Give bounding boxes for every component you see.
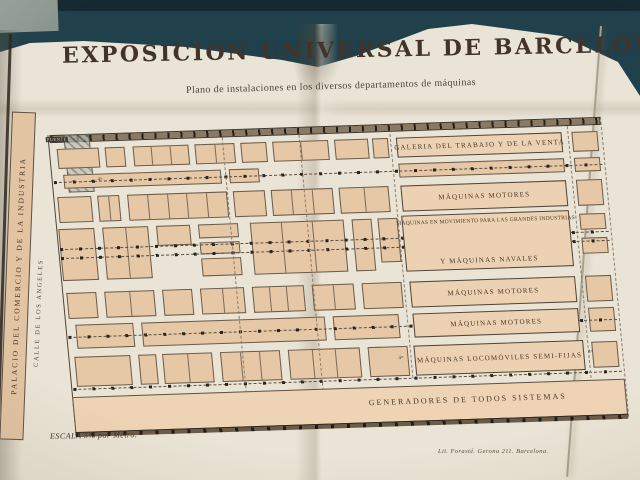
plan-block	[200, 287, 246, 314]
band-motores-2: MÁQUINAS MOTORES	[409, 276, 577, 307]
plan-block	[132, 145, 190, 167]
plan-block	[334, 139, 370, 160]
plan-block	[104, 290, 156, 318]
plan-block	[74, 355, 133, 387]
band-motores-2-label: MÁQUINAS MOTORES	[447, 286, 540, 297]
plan-block	[198, 223, 239, 238]
plan-block	[127, 191, 229, 220]
band-galeria-label: GALERIA DEL TRABAJO Y DE LA VENTA	[394, 138, 565, 152]
plan-block	[571, 131, 599, 152]
calle-label: CALLE DE LOS ANGELES	[33, 259, 45, 367]
plan-block	[201, 257, 243, 276]
plan-block	[271, 188, 335, 216]
plan-block	[252, 285, 306, 313]
plan-block	[591, 341, 619, 368]
scale-label: ESCALA 5% por Metro.	[50, 430, 137, 441]
plan-block	[57, 148, 101, 169]
photo-of-document: { "header": { "title": "EXPOSICION UNIVE…	[0, 0, 640, 480]
plan-block	[362, 282, 404, 309]
plan-block	[57, 196, 93, 223]
band-locomoviles-label: MÁQUINAS LOCOMÓVILES SEMI-FIJAS	[417, 351, 583, 364]
plan-block	[162, 289, 194, 316]
plan-block	[372, 138, 390, 159]
document-subtitle: Plano de instalaciones en los diversos d…	[156, 76, 506, 97]
plan-block	[240, 142, 268, 163]
dimension-label: 4ᵐ	[97, 178, 102, 183]
plan-block	[66, 292, 98, 319]
calle-label-wrap: CALLE DE LOS ANGELES	[32, 228, 46, 398]
imprint-label: Lit. Forasté. Gerona 211. Barcelona.	[438, 448, 549, 455]
background-object	[0, 0, 59, 33]
puente-label: PUENTE	[46, 137, 69, 143]
plan-block	[368, 346, 411, 377]
plan-block	[351, 219, 376, 272]
band-motores-1: MÁQUINAS MOTORES	[400, 180, 568, 211]
plan-block	[194, 143, 236, 164]
band-locomoviles: MÁQUINAS LOCOMÓVILES SEMI-FIJAS	[413, 340, 585, 376]
palacio-label: PALACIO DEL COMERCIO Y DE LA INDUSTRIA	[9, 157, 27, 395]
plan-block	[58, 228, 99, 281]
plan-block	[220, 350, 283, 382]
band-galeria: GALERIA DEL TRABAJO Y DE LA VENTA	[396, 132, 563, 157]
band-motores-3-label: MÁQUINAS MOTORES	[450, 317, 543, 328]
plan-block	[156, 225, 192, 246]
plan-block	[312, 283, 356, 310]
band-motores-1-label: MÁQUINAS MOTORES	[438, 190, 531, 201]
band-motores-3: MÁQUINAS MOTORES	[412, 308, 580, 337]
plan-block	[138, 354, 159, 385]
plan-block	[579, 213, 606, 230]
band-movimiento-line1: MÁQUINAS EN MOVIMIENTO PARA LAS GRANDES …	[396, 215, 575, 227]
plan-block	[97, 195, 121, 222]
band-movimiento: MÁQUINAS EN MOVIMIENTO PARA LAS GRANDES …	[401, 210, 574, 272]
plan-blocks-layer	[42, 103, 601, 122]
plan-block	[162, 352, 215, 384]
band-movimiento-line2: Y MÁQUINAS NAVALES	[440, 254, 539, 265]
table-edge-strip	[0, 0, 640, 11]
plan-block	[105, 147, 127, 168]
plan-block	[576, 179, 604, 206]
plan-block	[338, 186, 390, 214]
plan-block	[288, 347, 363, 379]
floor-plan: PUENTE GALERIA DEL TRABAJO Y DE LA VENTA…	[42, 103, 632, 453]
plan-block	[233, 190, 267, 217]
plan-block	[585, 275, 613, 302]
dimension-label: 4ᵐ	[588, 350, 593, 355]
dimension-label: 4ᵐ	[398, 356, 403, 361]
plan-block	[102, 226, 153, 279]
